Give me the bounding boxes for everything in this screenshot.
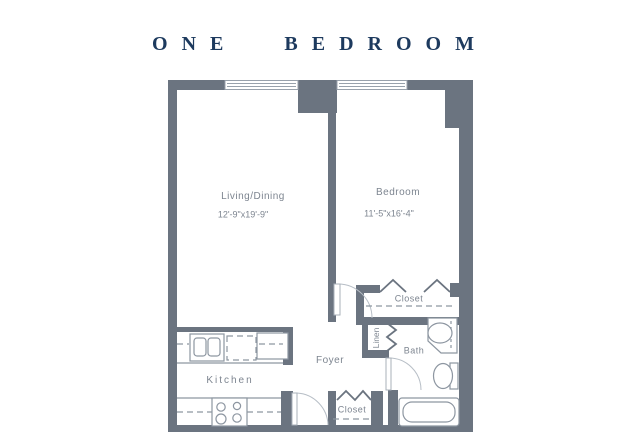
right-wall (459, 80, 473, 432)
bedroom-door-leaf (334, 284, 340, 315)
kitchen-north-wall (176, 327, 286, 332)
vanity-sink (428, 323, 452, 343)
tub-divider-wall (388, 390, 398, 425)
foyer-label: Foyer (316, 356, 344, 366)
right-wall-upper-pilaster (445, 88, 461, 128)
toilet-bowl (434, 364, 453, 389)
floor-plan-page: ONE BEDROOM (0, 0, 640, 432)
bedroom-closet-bifold-right (424, 280, 450, 292)
kitchen-south-wall-cap (281, 391, 293, 425)
living-dining-label: Living/Dining (221, 192, 285, 202)
floor-plan-drawing (0, 0, 640, 432)
bedroom-dimensions: 11'-5"x16'-4" (364, 210, 414, 219)
window-living (225, 81, 298, 90)
linen-closet-label: Linen (372, 328, 381, 349)
center-column (298, 80, 337, 113)
stove (212, 398, 247, 426)
bathtub (399, 398, 459, 426)
entry-door-leaf (292, 393, 297, 425)
entry-closet-label: Closet (338, 406, 367, 415)
entry-closet-bifold (337, 391, 371, 400)
entry-closet-right-wall (371, 391, 383, 425)
bath-door-leaf (386, 358, 391, 390)
bedroom-closet-right-stub (450, 283, 460, 297)
entry-door-swing (297, 393, 328, 425)
bath-label: Bath (404, 347, 425, 356)
entry-closet-left-wall (328, 391, 336, 425)
living-dining-dimensions: 12'-9"x19'-9" (218, 211, 268, 220)
bedroom-closet-label: Closet (395, 295, 424, 304)
entry-door (292, 393, 328, 425)
dishwasher (227, 336, 256, 360)
linen-closet-bifold (387, 323, 396, 351)
bedroom-label: Bedroom (376, 188, 420, 198)
kitchen-label: Kitchen (206, 376, 253, 386)
linen-closet-bottom-wall (362, 350, 389, 358)
left-wall (168, 80, 177, 432)
bath-door (386, 358, 421, 390)
bedroom-closet-bifold-left (380, 280, 406, 292)
window-bedroom (337, 81, 407, 90)
refrigerator (257, 333, 288, 359)
bath-door-swing (389, 358, 421, 390)
